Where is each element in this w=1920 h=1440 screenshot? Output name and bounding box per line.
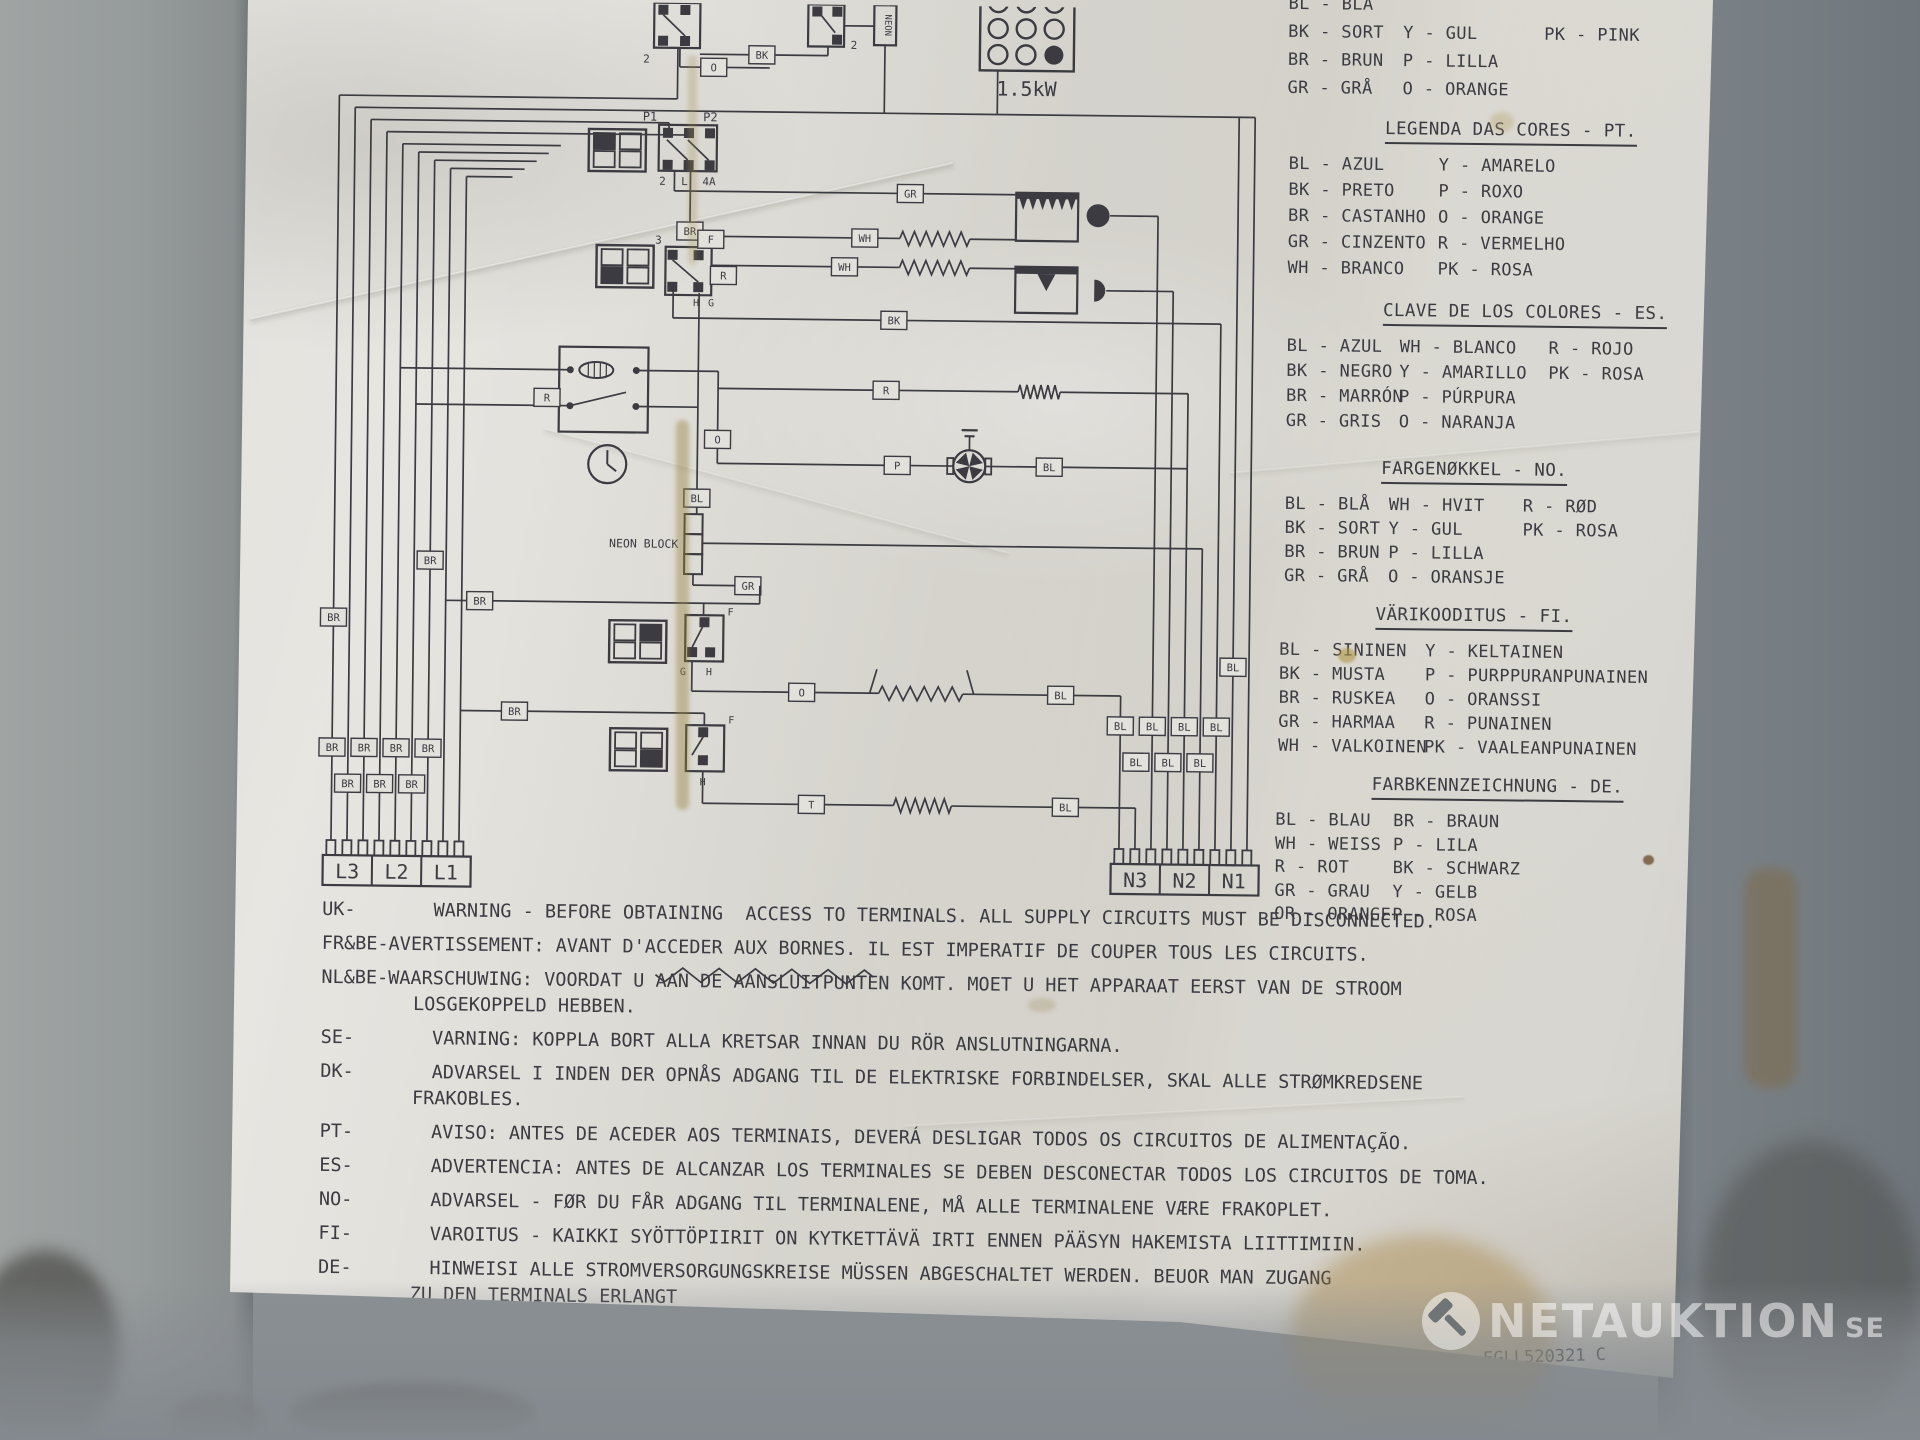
wire (435, 160, 537, 161)
wire (638, 406, 698, 407)
terminal-pin (1210, 850, 1219, 865)
terminal-pin (422, 841, 431, 856)
wire (570, 392, 626, 407)
wire (718, 388, 1018, 391)
legend-entry: BK - SORT (1288, 22, 1384, 43)
legend-pt: LEGENDA DAS CORES - PT.BL - AZULY - AMAR… (1287, 118, 1636, 288)
indicator-cell (641, 733, 662, 749)
element-tooth (1068, 198, 1076, 210)
diagram-label: BL (1054, 690, 1067, 702)
wire (712, 265, 900, 267)
legend-entry: Y - GUL (1388, 519, 1463, 540)
wire (692, 625, 703, 647)
resistor (1018, 385, 1060, 399)
legend-fi: VÄRIKOODITUS - FI.BL - SININENY - KELTAI… (1278, 604, 1573, 763)
wire (1199, 549, 1202, 850)
wire (355, 107, 1255, 117)
legend-row: GR - GRÅO - ORANSJE (1284, 566, 1566, 593)
warning-se: SE- VARNING: KOPPLA BORT ALLA KRETSAR IN… (321, 1025, 1571, 1065)
wire (717, 371, 718, 463)
indicator-cell (602, 249, 623, 265)
legend-title: VÄRIKOODITUS - FI. (1375, 605, 1572, 632)
selector-dot (988, 45, 1007, 64)
selector-dot (989, 19, 1008, 38)
terminal-pin (326, 840, 335, 855)
wire (331, 95, 339, 840)
diagram-label: F (708, 234, 714, 246)
wire (466, 177, 512, 178)
watermark-brand: NETAUKTION (1488, 1294, 1839, 1348)
legend-entry: BK - SCHWARZ (1393, 858, 1521, 879)
wire (674, 191, 1016, 195)
legend-entry: WH - HVIT (1389, 495, 1485, 516)
terminal-pin (1242, 850, 1251, 865)
legend-entry: BK - SORT (1284, 518, 1380, 539)
diagram-label: BK (755, 50, 768, 62)
diagram-label: BR (390, 743, 403, 755)
legend-row: GR - GRISO - NARANJA (1286, 411, 1667, 440)
warning-no: NO- ADVARSEL - FØR DU FÅR ADGANG TIL TER… (319, 1187, 1569, 1227)
rust-stain (1745, 868, 1797, 1088)
diagram-label: F (727, 608, 733, 619)
diagram-label: N2 (1172, 869, 1196, 893)
element-tooth (1058, 198, 1066, 210)
wire (379, 132, 387, 841)
diagram-label: G (708, 298, 714, 309)
diagram-label: BL (1227, 662, 1240, 674)
lamp-switch-box (559, 347, 649, 433)
legend-es: CLAVE DE LOS COLORES - ES.BL - AZULWH - … (1286, 300, 1668, 440)
photo-of-wiring-diagram: 2OBK2NEON1.5kWP1P22L4AGRWHWH3BRFRHGBKBLR… (0, 0, 1920, 1440)
diagram-label: BR (424, 555, 437, 567)
wire (969, 268, 1015, 269)
contact-pad (693, 282, 703, 292)
fan-blades (955, 452, 983, 480)
diagram-label: BL (1114, 721, 1127, 733)
legend-entry: BL - BLAU (1275, 810, 1371, 831)
diagram-label: BL (1210, 722, 1223, 734)
wire (443, 168, 451, 841)
diagram-label: BL (1178, 722, 1191, 734)
wire (667, 140, 688, 160)
diagram-label: 1.5kW (996, 77, 1057, 102)
diagram-label: N3 (1123, 868, 1147, 892)
legend-entry: R - RØD (1523, 497, 1598, 518)
legend-entry: Y - GUL (1403, 23, 1478, 44)
terminal-pin (342, 840, 351, 855)
metal-panel-left (0, 0, 253, 1440)
wire (663, 15, 685, 36)
legend-entry: WH - WEISS (1275, 833, 1382, 854)
terminal-pin (406, 841, 415, 856)
printed-content: 2OBK2NEON1.5kWP1P22L4AGRWHWH3BRFRHGBKBLR… (0, 0, 1920, 1440)
legend-entry: BR - CASTANHO (1288, 206, 1426, 228)
diagram-label: BR (341, 778, 354, 790)
resistor (879, 686, 963, 701)
legend-entry: BL - AZUL (1289, 154, 1385, 175)
diagram-label: O (711, 62, 717, 74)
wire (963, 694, 1121, 696)
legend-entry: O - ORANGE (1438, 208, 1545, 229)
legend-entry: BK - NEGRO (1286, 361, 1393, 382)
diagram-label: L2 (384, 860, 408, 884)
legend-title: FARBKENNZEICHNUNG - DE. (1371, 775, 1623, 803)
wire (884, 45, 885, 113)
legend-entry: BL - BLÅ (1288, 0, 1373, 15)
legend-entry: BR - BRAUN (1393, 811, 1500, 832)
legend-entry: BL - BLÅ (1285, 494, 1370, 515)
legend-entry: WH - VALKOINEN (1278, 736, 1427, 758)
diagram-label: L1 (434, 860, 458, 884)
diagram-label: F (728, 716, 734, 727)
legend-row: WH - BRANCOPK - ROSA (1287, 258, 1635, 288)
legend-entry: P - LILLA (1388, 543, 1484, 564)
contact-pad (705, 128, 715, 138)
wire (395, 144, 403, 841)
legend-entry: P - LILLA (1403, 51, 1499, 72)
contact-pad (658, 36, 668, 46)
wire (363, 119, 371, 840)
lamp-symbol (579, 362, 613, 378)
legend-row: BR - CASTANHOO - ORANGE (1288, 206, 1636, 236)
resistor (893, 798, 951, 813)
indicator-cell (615, 750, 636, 766)
legend-entry: PK - VAALEANPUNAINEN (1424, 737, 1637, 759)
legend-row: WH - VALKOINENPK - VAALEANPUNAINEN (1278, 736, 1571, 763)
legend-title: FARGENØKKEL - NO. (1381, 459, 1567, 486)
legend-entry: WH - BRANCO (1287, 258, 1404, 279)
contact-pad (832, 7, 842, 17)
warning-dk: DK- ADVARSEL I INDEN DER OPNÅS ADGANG TI… (320, 1059, 1571, 1125)
contact-pad (705, 647, 715, 657)
wire (411, 152, 419, 841)
diagram-label: BR (473, 596, 486, 608)
legend-entry: BR - RUSKEA (1279, 688, 1396, 709)
warning-pt: PT- AVISO: ANTES DE ACEDER AOS TERMINAIS… (320, 1119, 1570, 1159)
contact-pad (698, 755, 708, 765)
legend-entry: R - VERMELHO (1438, 234, 1566, 255)
wire (1247, 117, 1255, 850)
legend-row: BK - MUSTAP - PURPPURANPUNAINEN (1279, 664, 1572, 691)
legend-row: BL - BLÅWH - HVITR - RØD (1285, 494, 1567, 521)
legend-entry: BK - PRETO (1288, 180, 1395, 201)
contact-pad (680, 36, 690, 46)
legend-entry: O - ORANSSI (1425, 689, 1542, 710)
wire (673, 318, 1221, 324)
diagram-label: L3 (335, 859, 359, 883)
diagram-label: BL (1146, 721, 1159, 733)
diagram-label: BR (422, 743, 435, 755)
stain-spot (1028, 998, 1056, 1012)
diagram-label: BL (690, 493, 703, 505)
legend-entry: BL - AZUL (1287, 336, 1383, 357)
wire (1231, 117, 1239, 850)
indicator-cell (620, 151, 641, 167)
indicator-cell (614, 642, 635, 658)
legend-row: BL - SININENY - KELTAINEN (1279, 640, 1572, 667)
element-teeth (1015, 267, 1077, 275)
wire (459, 177, 467, 842)
diagram-label: 2 (659, 175, 666, 188)
watermark-tld: SE (1845, 1313, 1885, 1344)
indicator-cell (601, 267, 622, 283)
wire (692, 691, 879, 693)
wire (1110, 216, 1158, 217)
diagram-paper-sheet: 2OBK2NEON1.5kWP1P22L4AGRWHWH3BRFRHGBKBLR… (0, 0, 1920, 1440)
diagram-label: O (714, 434, 720, 446)
wire (371, 119, 669, 122)
diagram-label: T (808, 799, 815, 811)
legend-entry: R - ROT (1275, 857, 1350, 878)
fan-motor-icon (953, 450, 985, 482)
terminal-pin (374, 841, 383, 856)
legend-entry: BK - MUSTA (1279, 664, 1386, 685)
wire (677, 48, 678, 99)
stain-spot (1643, 855, 1654, 865)
diagram-label: N1 (1222, 869, 1246, 893)
terminal-pin (438, 841, 447, 856)
diagram-label: BL (1161, 757, 1174, 769)
wire (702, 543, 1202, 549)
legend-entry: P - PURPPURANPUNAINEN (1425, 665, 1649, 688)
terminal-pin (1146, 849, 1155, 864)
contact-pad (699, 617, 709, 627)
terminal-pin (1178, 850, 1187, 865)
diagram-label: NEON BLOCK (609, 536, 678, 551)
diagram-label: BR (327, 612, 340, 624)
legend-entry: P - LILA (1393, 835, 1478, 856)
indicator-cell (640, 625, 661, 641)
indicator-cell (594, 133, 615, 149)
wire (967, 670, 974, 694)
indicator-cell (615, 732, 636, 748)
legend-row: GR - HARMAAR - PUNAINEN (1278, 712, 1571, 739)
diagram-label: GR (904, 188, 917, 200)
resistor (899, 260, 969, 275)
diagram-label: BL (1059, 802, 1072, 814)
wire (451, 168, 525, 169)
terminal-pin (358, 840, 367, 855)
legend-entry: GR - GRÅ (1287, 78, 1372, 99)
contact-pad (832, 35, 842, 45)
diagram-label: P1 (643, 110, 658, 124)
indicator-cell (627, 267, 648, 283)
wire (607, 464, 616, 471)
diagram-label: R (883, 385, 890, 397)
selector-dot-filled (1044, 46, 1063, 65)
legend-entry: BR - BRUN (1284, 542, 1380, 563)
contact-dot (567, 366, 574, 373)
legend-row: BK - PRETOP - ROXO (1288, 180, 1636, 210)
warning-es: ES- ADVERTENCIA: ANTES DE ALCANZAR LOS T… (319, 1153, 1569, 1193)
element-tooth (1048, 198, 1056, 210)
legend-entry: WH - BLANCO (1400, 337, 1517, 358)
legend-entry: GR - GRIS (1286, 411, 1382, 432)
legend-entry: GR - GRAU (1274, 880, 1370, 901)
diagram-label: GR (741, 581, 754, 593)
legend-entry: O - ORANSJE (1388, 567, 1505, 588)
contact-pad (705, 160, 715, 170)
wire (460, 710, 704, 713)
full-grill-dot (1086, 204, 1109, 227)
diagram-label: 4A (702, 175, 716, 188)
legend-entry: BR - BRUN (1288, 50, 1384, 71)
diagram-label: BL (1193, 758, 1206, 770)
wire (403, 144, 561, 146)
diagram-label: BR (373, 779, 386, 791)
diagram-label: 3 (655, 234, 662, 247)
diagram-label: P2 (703, 110, 718, 124)
diagram-label: WH (838, 262, 851, 274)
diagram-label: R (720, 270, 727, 282)
element-tooth (1037, 274, 1055, 291)
wire (638, 370, 718, 371)
legend-row: BL - AZULY - AMARELO (1289, 154, 1637, 184)
wire (985, 466, 1187, 468)
wire (419, 152, 549, 153)
terminal-pin (1162, 849, 1171, 864)
legend-no: FARGENØKKEL - NO.BL - BLÅWH - HVITR - RØ… (1284, 458, 1567, 593)
legend-entry: O - NARANJA (1399, 412, 1516, 433)
legend-entry: P - ROXO (1438, 182, 1523, 203)
selector-dot (1045, 20, 1064, 39)
legend-entry: O - ORANGE (1402, 79, 1509, 100)
legend-entry: GR - HARMAA (1278, 712, 1395, 733)
wire (951, 806, 1135, 808)
terminal-pin (454, 841, 463, 856)
diagram-label: NEON (882, 14, 892, 36)
diagram-label: BR (326, 742, 339, 754)
legend-entry: Y - KELTAINEN (1425, 641, 1563, 663)
legend-row: BR - RUSKEAO - ORANSSI (1278, 688, 1571, 715)
wire (1106, 291, 1173, 292)
legend-entry: Y - AMARELO (1439, 156, 1556, 177)
wire (697, 293, 700, 514)
indicator-cell (627, 249, 648, 265)
element-tooth (1029, 198, 1037, 210)
legend-entry: PK - PINK (1544, 25, 1640, 46)
diagram-label: BL (1043, 462, 1056, 474)
legend-entry: R - PUNAINEN (1424, 713, 1552, 734)
stain-drip (688, 55, 697, 265)
diagram-label: P (894, 460, 900, 472)
terminal-pin (390, 841, 399, 856)
terminal-pin (1130, 849, 1139, 864)
legend-row: BK - SORTY - GULPK - ROSA (1284, 518, 1566, 545)
terminal-pin (1194, 850, 1203, 865)
diagram-label: WH (858, 233, 871, 245)
wire (717, 463, 953, 466)
legend-entry: BR - MARRÓN (1286, 386, 1403, 407)
wire (1183, 394, 1188, 850)
diagram-label: H (706, 667, 712, 678)
contact-pad (663, 128, 673, 138)
legend-entry: Y - GELB (1392, 882, 1477, 903)
stain-drip (676, 420, 689, 810)
legend-row: BR - BRUNP - LILLA (1284, 542, 1566, 569)
legend-entry: Y - AMARILLO (1399, 362, 1527, 383)
wire (970, 239, 1016, 240)
contact-pad (668, 250, 678, 260)
legend-entry: PK - ROSA (1437, 260, 1533, 281)
legend-entry: GR - GRÅ (1284, 566, 1369, 587)
indicator-cell (594, 151, 615, 167)
indicator-cell (640, 643, 661, 659)
stain-spot (1490, 112, 1514, 132)
warning-frbe: FR&BE-AVERTISSEMENT: AVANT D'ACCEDER AUX… (322, 931, 1572, 971)
legend-entry: PK - ROSA (1522, 521, 1618, 542)
stain-spot (1338, 648, 1356, 663)
legend-title: CLAVE DE LOS COLORES - ES. (1383, 301, 1668, 329)
wire (347, 107, 355, 840)
contact-pad (680, 5, 690, 15)
half-grill-dot (1094, 280, 1105, 302)
wire (1215, 324, 1221, 850)
legend-entry: R - ROJO (1548, 339, 1633, 360)
wire (339, 95, 677, 99)
diagram-label: R (544, 392, 551, 404)
diagram-label: 2 (851, 39, 858, 52)
legend-entry: PK - ROSA (1548, 364, 1644, 385)
legend-entry: GR - CINZENTO (1288, 232, 1426, 254)
terminal-pin (1114, 849, 1123, 864)
selector-dot (1016, 45, 1035, 64)
terminal-pin (1226, 850, 1235, 865)
legend-entry: P - PÚRPURA (1399, 387, 1516, 408)
diagram-label: BR (508, 706, 521, 718)
element-tooth (1039, 198, 1047, 210)
wire (870, 669, 877, 693)
diagram-label: BR (405, 779, 418, 791)
contact-pad (663, 160, 673, 170)
diagram-label: BK (887, 315, 900, 327)
contact-pad (667, 282, 677, 292)
element-tooth (1019, 198, 1027, 210)
auction-watermark: NETAUKTION SE (1420, 1290, 1885, 1352)
legend-row: GR - CINZENTOR - VERMELHO (1288, 232, 1636, 262)
selector-dot (1017, 19, 1036, 38)
indicator-cell (620, 133, 641, 149)
warning-nlbe: NL&BE-WAARSCHUWING: VOORDAT U AAN DE AAN… (321, 965, 1572, 1031)
resistor (900, 231, 970, 246)
contact-pad (658, 5, 668, 15)
wire (400, 368, 570, 370)
gavel-icon (1420, 1290, 1482, 1352)
diagram-label: O (798, 687, 804, 699)
indicator-cell (641, 751, 662, 767)
diagram-label: BR (358, 742, 371, 754)
wire (1060, 392, 1188, 393)
wire (692, 735, 704, 755)
indicator-cell (614, 624, 635, 640)
diagram-label: BL (1129, 757, 1142, 769)
diagram-label: 2 (643, 53, 650, 66)
